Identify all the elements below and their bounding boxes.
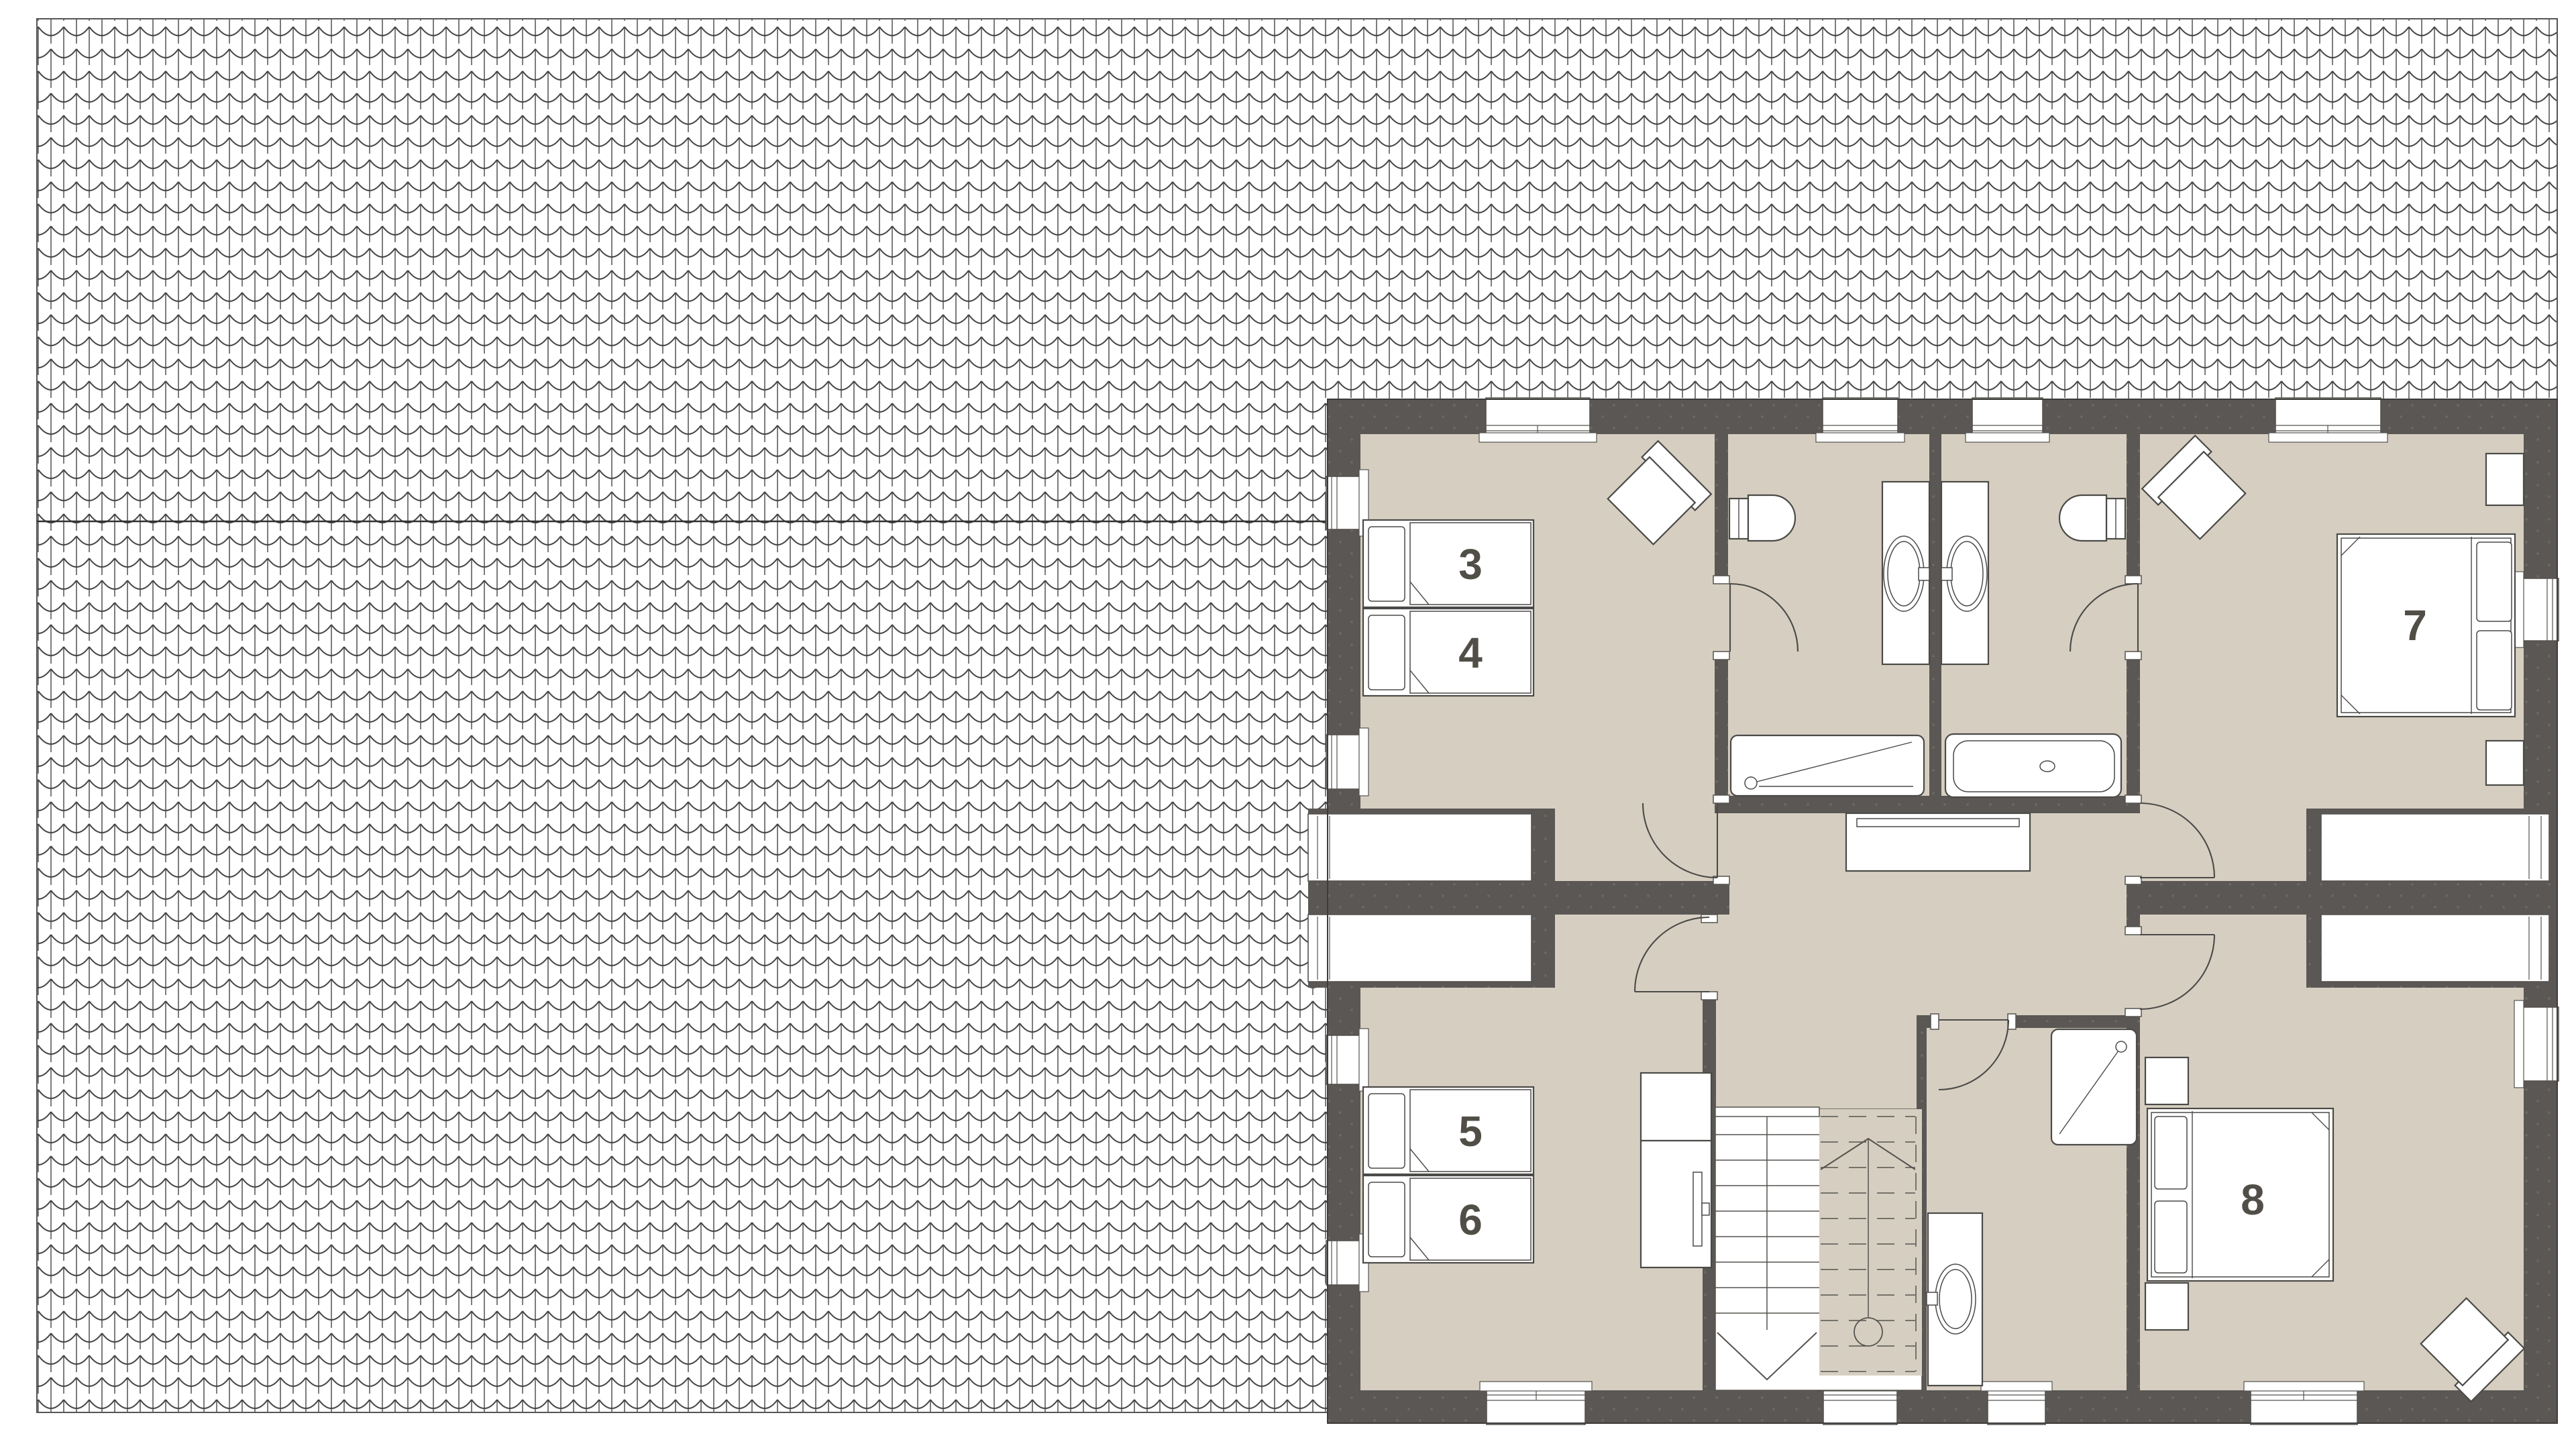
building: 3 4 bbox=[1308, 398, 2559, 1425]
window-top-3 bbox=[1966, 398, 2049, 442]
nightstand bbox=[2486, 454, 2524, 505]
window-left-2 bbox=[1326, 728, 1368, 796]
bathtub bbox=[1945, 734, 2121, 797]
window-top-1 bbox=[1479, 398, 1597, 442]
bed-4-number: 4 bbox=[1458, 629, 1483, 677]
bed-5 bbox=[1363, 1087, 1534, 1174]
sink-vanity bbox=[1927, 1213, 1982, 1386]
floor-plan: 3 4 bbox=[0, 0, 2576, 1450]
bed-7-number: 7 bbox=[2403, 601, 2427, 650]
sink-vanity bbox=[1941, 482, 1988, 664]
bed-8-number: 8 bbox=[2241, 1176, 2265, 1224]
window-bottom-1 bbox=[1480, 1382, 1592, 1425]
nightstand bbox=[2486, 741, 2524, 785]
bed-3 bbox=[1363, 520, 1534, 607]
window-right-2 bbox=[2514, 1000, 2559, 1088]
window-top-4 bbox=[2269, 398, 2387, 442]
bed-3-number: 3 bbox=[1458, 540, 1483, 588]
window-bottom-3 bbox=[1981, 1382, 2052, 1425]
window-left-3 bbox=[1326, 1029, 1368, 1091]
nightstand bbox=[2145, 1283, 2188, 1330]
bed-5-number: 5 bbox=[1458, 1107, 1483, 1155]
window-top-2 bbox=[1816, 398, 1904, 442]
nightstand bbox=[2145, 1057, 2188, 1104]
window-bottom-4 bbox=[2244, 1382, 2364, 1425]
stair-top-rail bbox=[1715, 1107, 1819, 1117]
sink-vanity bbox=[1882, 482, 1929, 664]
hall-landing bbox=[1846, 813, 2030, 871]
console-table bbox=[1846, 813, 2030, 871]
shower bbox=[2051, 1029, 2137, 1145]
window-left-4 bbox=[1326, 1234, 1368, 1292]
stair-up-flight-floor bbox=[1819, 1109, 1922, 1376]
window-right-1 bbox=[2514, 572, 2559, 648]
window-left-1 bbox=[1326, 470, 1368, 536]
bed-4 bbox=[1363, 609, 1534, 696]
bed-6 bbox=[1363, 1176, 1534, 1263]
toilet bbox=[2059, 495, 2125, 541]
bed-6-number: 6 bbox=[1458, 1196, 1483, 1244]
staircase bbox=[1715, 1107, 1922, 1390]
toilet bbox=[1729, 495, 1795, 541]
shower bbox=[1731, 735, 1924, 796]
